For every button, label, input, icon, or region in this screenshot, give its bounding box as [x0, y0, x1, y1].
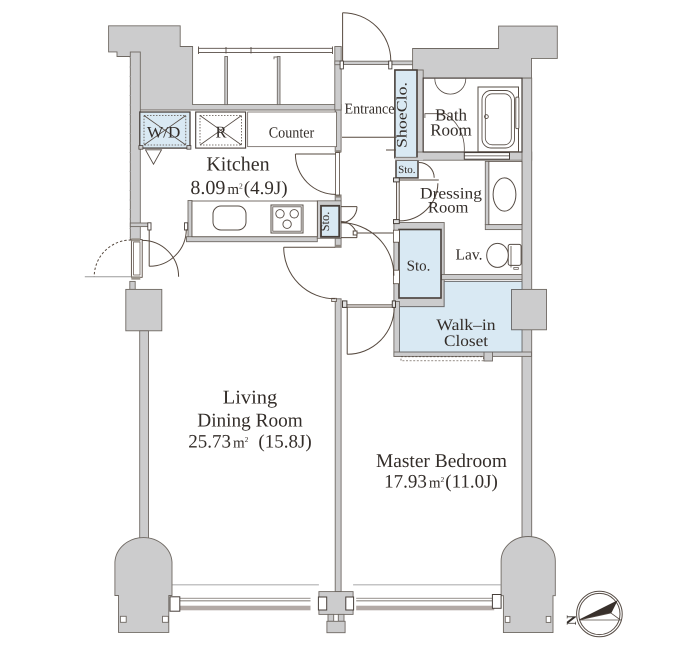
svg-text:Master Bedroom: Master Bedroom	[376, 451, 507, 472]
svg-text:N: N	[565, 615, 580, 625]
svg-text:Counter: Counter	[269, 124, 315, 141]
svg-text:Closet: Closet	[444, 333, 489, 350]
svg-text:ShoeClo.: ShoeClo.	[395, 82, 411, 148]
svg-text:Entrance: Entrance	[345, 102, 395, 118]
svg-text:R: R	[215, 122, 226, 141]
svg-text:Living: Living	[223, 388, 278, 409]
svg-text:Sto.: Sto.	[398, 164, 416, 176]
svg-text:Walk–in: Walk–in	[436, 317, 495, 334]
svg-text:Room: Room	[428, 199, 469, 216]
svg-text:W/D: W/D	[147, 124, 181, 141]
svg-text:Lav.: Lav.	[456, 247, 483, 264]
svg-text:Room: Room	[430, 120, 472, 139]
svg-text:Sto.: Sto.	[407, 259, 431, 275]
svg-text:Sto.: Sto.	[318, 212, 332, 232]
svg-text:Dining Room: Dining Room	[197, 410, 302, 431]
svg-text:Kitchen: Kitchen	[206, 154, 269, 176]
